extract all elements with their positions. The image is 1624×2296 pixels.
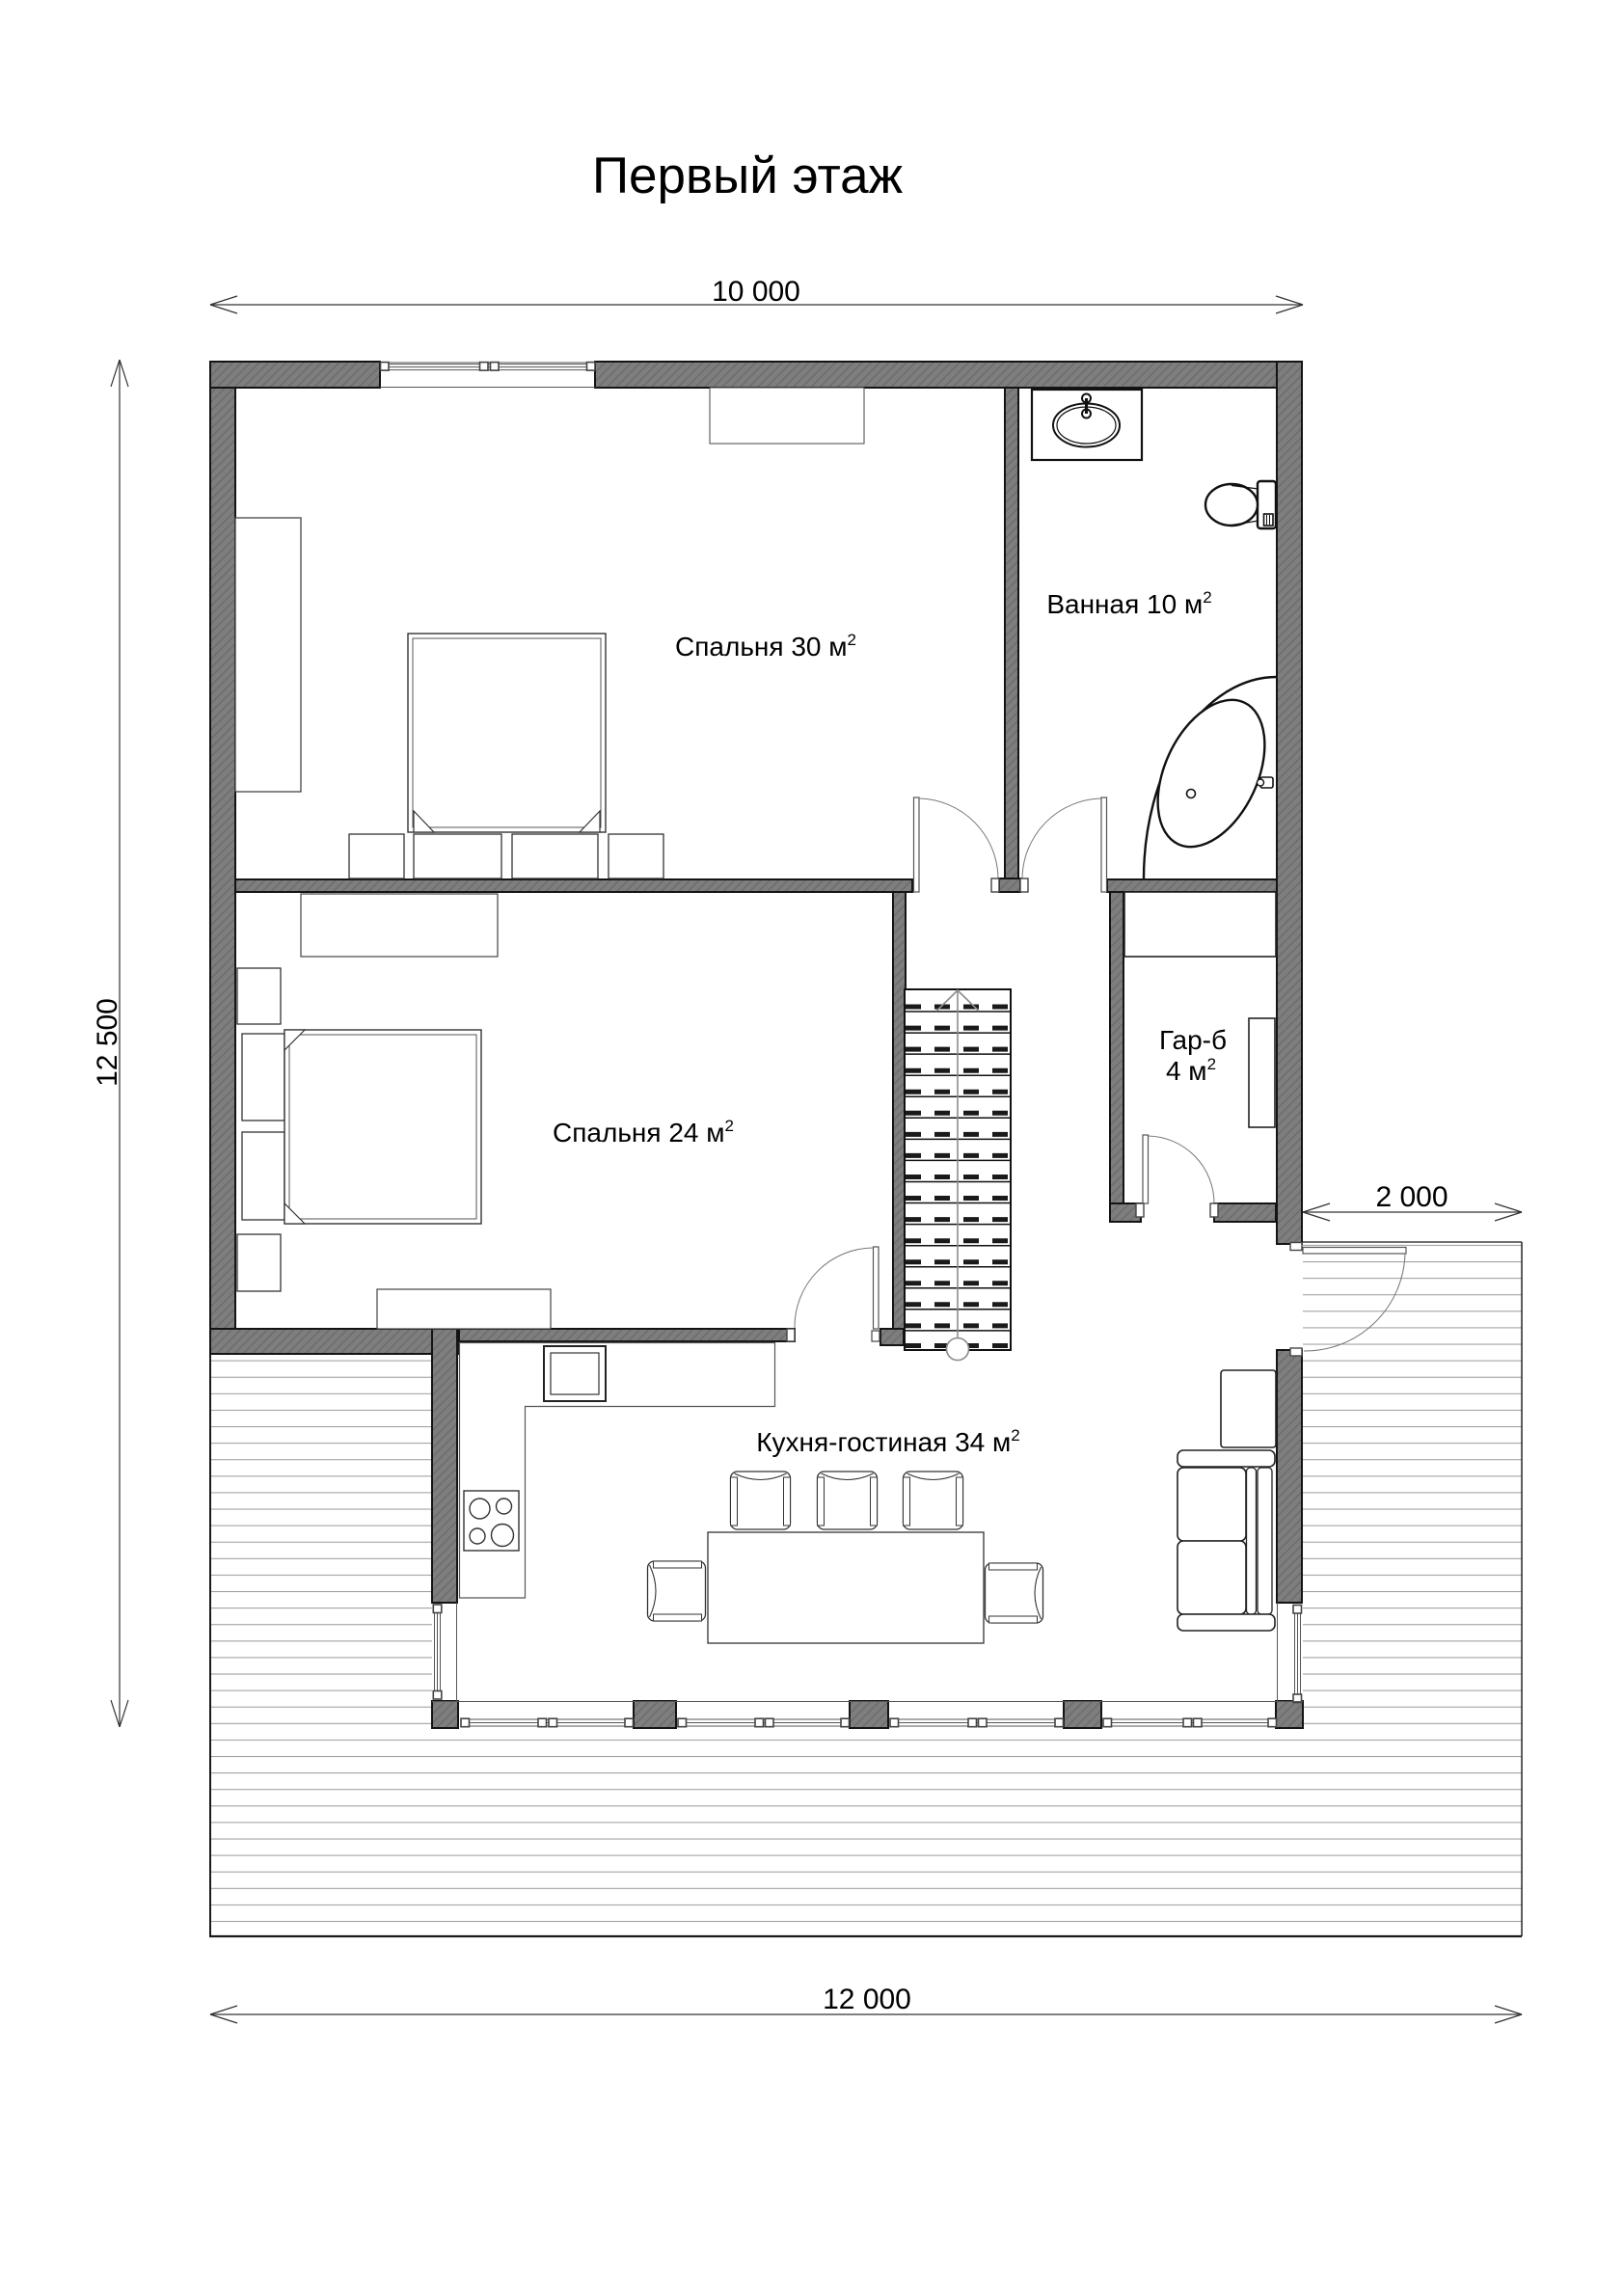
svg-text:12 000: 12 000 (823, 1984, 911, 2015)
svg-text:12 500: 12 500 (92, 998, 123, 1087)
svg-text:Кухня-гостиная 34 м2: Кухня-гостиная 34 м2 (756, 1426, 1020, 1457)
svg-text:Ванная 10 м2: Ванная 10 м2 (1046, 588, 1211, 619)
svg-text:Спальня 30 м2: Спальня 30 м2 (675, 631, 856, 662)
svg-text:10 000: 10 000 (712, 276, 800, 308)
svg-text:2 000: 2 000 (1375, 1181, 1448, 1213)
svg-text:Первый этаж: Первый этаж (592, 148, 904, 204)
svg-text:Спальня 24 м2: Спальня 24 м2 (553, 1117, 734, 1148)
svg-text:Гар-б: Гар-б (1159, 1025, 1227, 1055)
